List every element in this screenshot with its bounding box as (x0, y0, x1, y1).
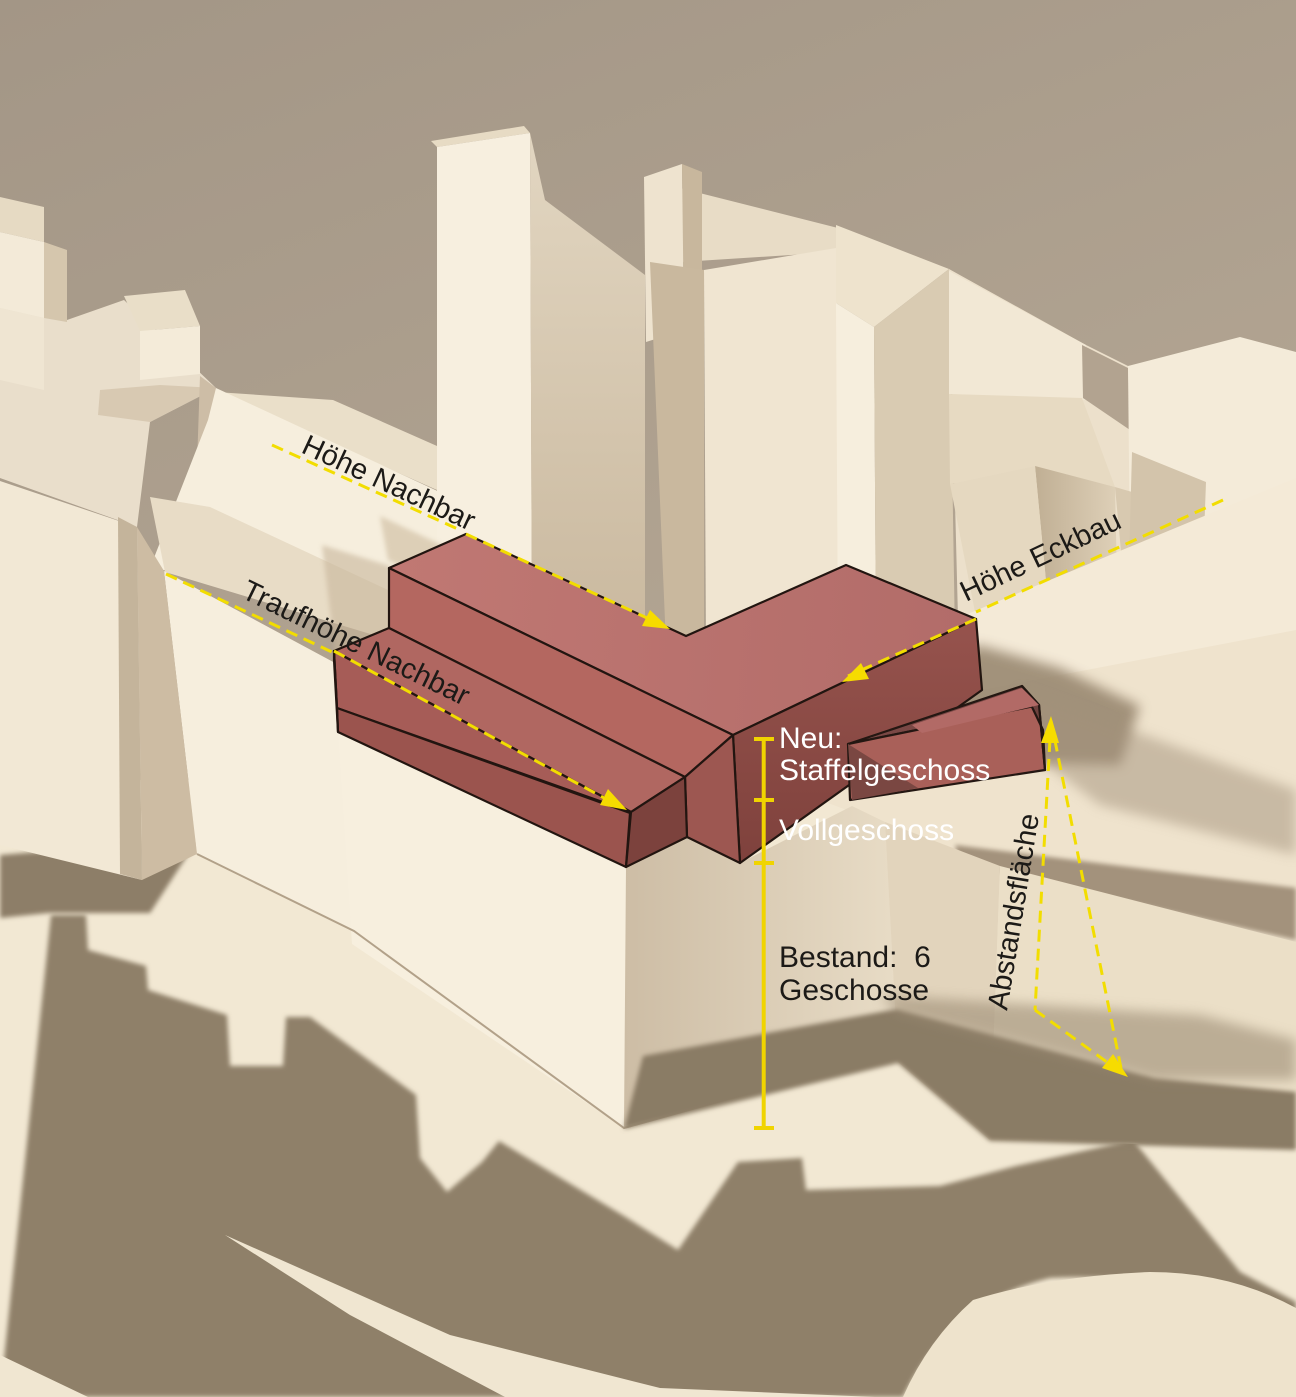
svg-text:Bestand: 6: Bestand: 6 (779, 941, 931, 974)
svg-text:Staffelgeschoss: Staffelgeschoss (779, 754, 990, 787)
svg-text:Geschosse: Geschosse (779, 974, 929, 1007)
svg-text:Vollgeschoss: Vollgeschoss (779, 814, 954, 847)
svg-text:Neu:: Neu: (779, 722, 842, 755)
